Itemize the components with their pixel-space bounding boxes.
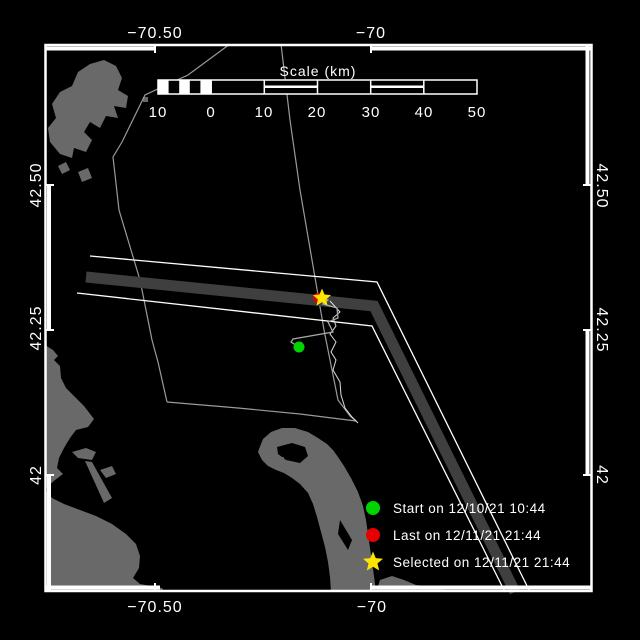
start-marker [294,342,305,353]
legend-selected-label: Selected on 12/11/21 21:44 [393,555,570,570]
land-harbor-island [72,448,96,460]
frame-thick-right-2 [586,330,590,475]
scale-bar-title: Scale (km) [280,63,357,79]
legend-last-marker-red-circle-icon [366,528,380,542]
legend-start-label: Start on 12/10/21 10:44 [393,501,546,516]
scale-bar: Scale (km) 10 0 10 20 30 40 50 [149,63,487,121]
sanctuary-boundary-east [281,44,356,421]
land-chatham [376,576,448,592]
axis-label-lat-left-3: 42 [28,465,45,485]
sanctuary-boundary-west [113,44,230,402]
land-islet [78,168,92,182]
axis-label-lon-bottom-1: −70.50 [127,599,182,616]
frame-thick-right-1 [586,45,590,185]
land-cape-cod [258,428,376,592]
frame-thick-bottom-1 [45,586,160,590]
scale-block [179,80,190,94]
axis-label-lat-left-2: 42.25 [28,305,45,350]
land-harbor-island [100,466,116,478]
frame-thick-top-2 [371,47,592,51]
map-canvas: Scale (km) 10 0 10 20 30 40 50 −70.50 −7… [0,0,640,640]
sanctuary-boundary-south [167,402,356,421]
scale-tick-label: 50 [468,104,487,121]
scale-midline [371,86,424,89]
scale-tick-label: 10 [149,104,168,121]
scale-tick-label: 40 [415,104,434,121]
scale-tick-label: 20 [308,104,327,121]
axis-label-lat-left-1: 42.50 [28,162,45,207]
frame-thick-left-2 [47,475,51,590]
land-harbor-spit [85,461,112,503]
scale-tick-label: 0 [206,104,215,121]
axis-label-lat-right-2: 42.25 [593,307,610,352]
legend: Start on 12/10/21 10:44 Last on 12/11/21… [363,501,570,570]
scale-tick-label: 30 [362,104,381,121]
scale-midline [264,86,317,89]
axis-label-lon-top-2: −70 [356,25,386,42]
axis-label-lon-bottom-2: −70 [357,599,387,616]
axis-label-lat-right-1: 42.50 [593,163,610,208]
scale-block [158,80,169,94]
land-cape-ann [48,60,128,158]
scale-tick-label: 10 [255,104,274,121]
frame-thick-top-1 [45,47,155,51]
frame-thick-left-1 [47,185,51,330]
scale-block [200,80,211,94]
legend-start-marker-green-circle-icon [366,501,380,515]
legend-last-label: Last on 12/11/21 21:44 [393,528,541,543]
frame-thick-bottom-2 [371,586,592,590]
axis-label-lon-top-1: −70.50 [127,25,182,42]
land-islet [58,162,70,174]
drifter-track-map: Scale (km) 10 0 10 20 30 40 50 −70.50 −7… [0,0,640,640]
boundary-group [113,44,356,421]
axis-label-lat-right-3: 42 [593,465,610,485]
